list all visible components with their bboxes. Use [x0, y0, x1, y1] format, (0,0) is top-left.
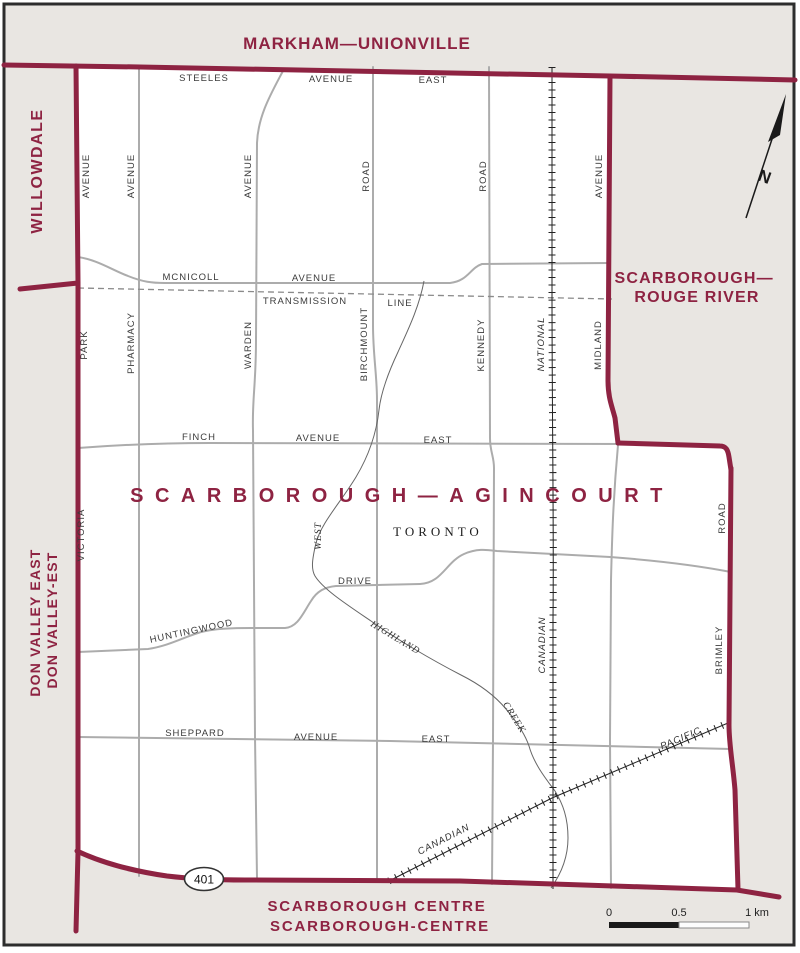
label-cn-canadian: CANADIAN: [537, 616, 548, 673]
scale-mid-label: 0.5: [671, 907, 686, 919]
district-map: 401 STEELES AVENUE EAST MCNICOLL AVENUE …: [0, 0, 800, 953]
label-sheppard: SHEPPARD: [165, 728, 225, 739]
label-warden: WARDEN: [243, 321, 254, 369]
label-kennedy-road: ROAD: [478, 160, 489, 191]
label-finch: FINCH: [182, 432, 216, 443]
label-brimley-road: ROAD: [717, 502, 728, 533]
label-warden-avenue: AVENUE: [243, 154, 254, 198]
neighbor-west-lower-line1: DON VALLEY EAST: [27, 548, 43, 696]
scale-start-label: 0: [606, 907, 612, 919]
label-mcnicoll: MCNICOLL: [162, 272, 219, 283]
neighbor-west-lower: DON VALLEY EAST DON VALLEY-EST: [27, 543, 60, 696]
label-steeles-avenue: AVENUE: [309, 74, 353, 85]
boundary-victoria-park: [76, 66, 78, 931]
label-victoria: VICTORIA: [76, 509, 87, 562]
label-finch-east: EAST: [424, 435, 453, 446]
label-kennedy: KENNEDY: [476, 319, 487, 372]
label-transmission-line: LINE: [387, 298, 412, 309]
label-finch-avenue: AVENUE: [296, 433, 340, 444]
label-midland: MIDLAND: [593, 320, 604, 370]
label-pharmacy: PHARMACY: [126, 312, 137, 374]
label-steeles: STEELES: [179, 73, 229, 84]
label-midland-avenue: AVENUE: [594, 154, 605, 198]
label-transmission: TRANSMISSION: [263, 296, 347, 307]
label-brimley: BRIMLEY: [714, 626, 725, 675]
city-label: TORONTO: [393, 524, 483, 539]
neighbor-west-upper: WILLOWDALE: [29, 108, 46, 233]
label-creek-west: WEST: [314, 522, 324, 550]
highway-401-label: 401: [194, 873, 214, 887]
neighbor-south-line2: SCARBOROUGH-CENTRE: [270, 918, 490, 935]
map-canvas: 401 STEELES AVENUE EAST MCNICOLL AVENUE …: [0, 0, 800, 953]
label-cn-national: NATIONAL: [536, 317, 547, 372]
label-birchmount: BIRCHMOUNT: [359, 307, 370, 381]
scale-bar-empty: [679, 922, 749, 928]
label-huntingwood-drive: DRIVE: [338, 576, 372, 587]
label-mcnicoll-avenue: AVENUE: [292, 273, 336, 284]
label-victoria-park: PARK: [79, 330, 90, 359]
label-birchmount-road: ROAD: [361, 160, 372, 191]
neighbor-east-line1: SCARBOROUGH—: [615, 270, 774, 287]
label-steeles-east: EAST: [419, 75, 448, 86]
district-title: SCARBOROUGH—AGINCOURT: [130, 485, 674, 507]
neighbor-east-line2: ROUGE RIVER: [634, 289, 759, 306]
neighbor-west-lower-line2: DON VALLEY-EST: [44, 551, 60, 688]
scale-end-label: 1 km: [745, 907, 769, 919]
neighbor-south-line1: SCARBOROUGH CENTRE: [267, 898, 486, 915]
label-pharmacy-avenue: AVENUE: [126, 154, 137, 198]
neighbor-north: MARKHAM—UNIONVILLE: [243, 34, 471, 53]
scale-bar-filled: [609, 922, 679, 928]
label-sheppard-avenue: AVENUE: [294, 732, 338, 743]
label-victoria-park-avenue: AVENUE: [81, 154, 92, 198]
label-sheppard-east: EAST: [422, 734, 451, 745]
highway-401-shield: 401: [185, 868, 224, 891]
